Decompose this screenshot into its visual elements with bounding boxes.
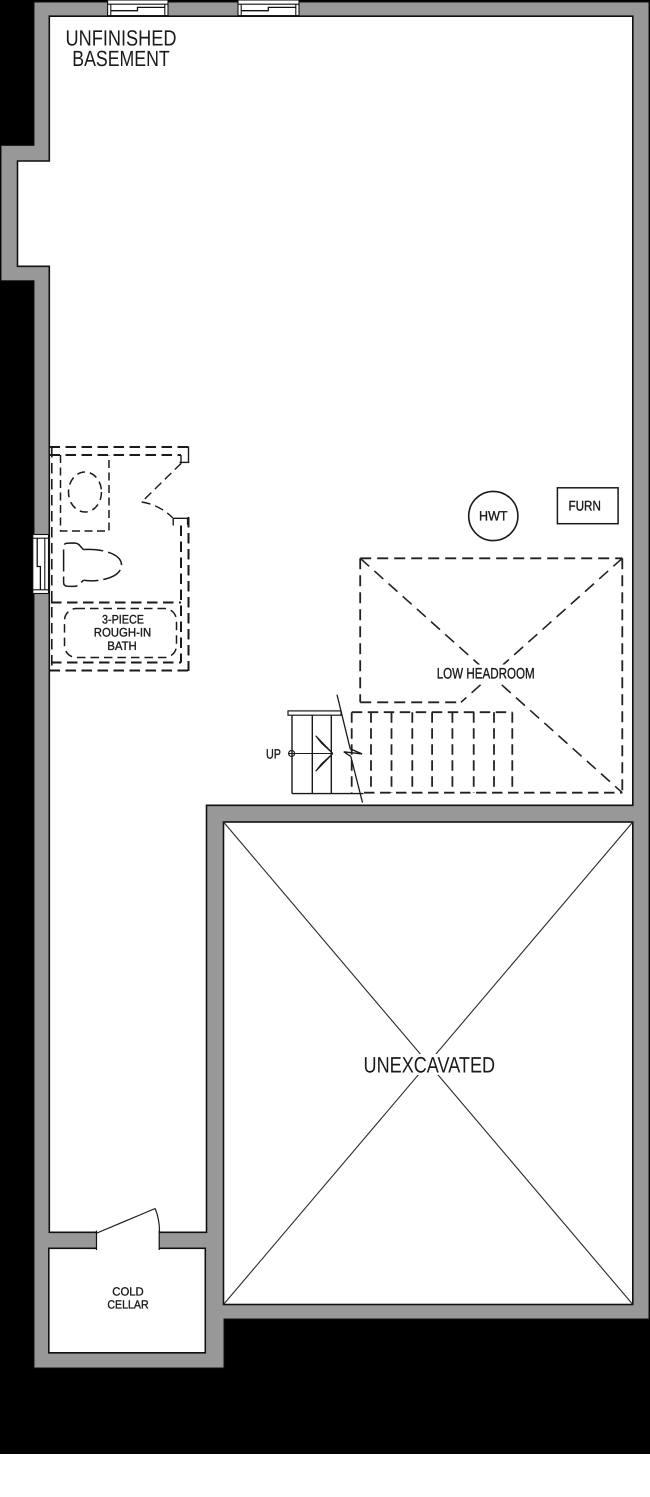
svg-text:CELLAR: CELLAR [107,1297,148,1311]
svg-text:COLD: COLD [112,1284,143,1298]
svg-text:FURN: FURN [569,498,601,514]
svg-text:BASEMENT: BASEMENT [72,46,170,71]
svg-text:UP: UP [266,747,281,762]
svg-text:ROUGH-IN: ROUGH-IN [94,625,152,639]
svg-text:UNEXCAVATED: UNEXCAVATED [364,1053,496,1078]
svg-text:HWT: HWT [479,509,508,524]
svg-text:BATH: BATH [107,639,137,653]
svg-text:LOW HEADROOM: LOW HEADROOM [437,665,535,682]
